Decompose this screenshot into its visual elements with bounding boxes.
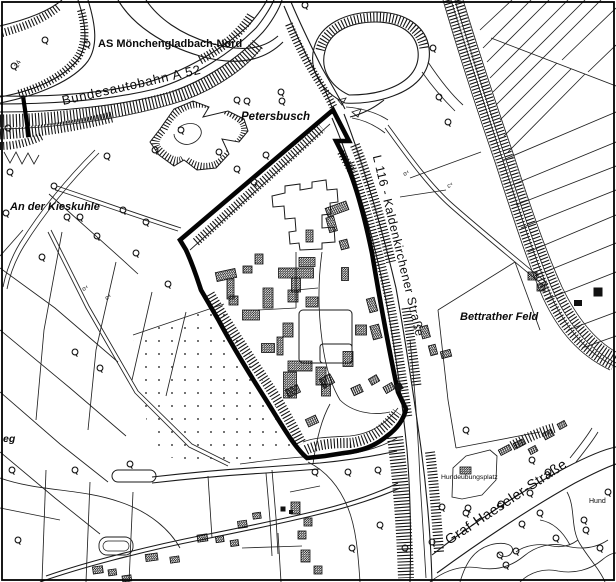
svg-text:An der Kieskuhle: An der Kieskuhle [9,201,100,213]
svg-text:Hundeubungsplatz: Hundeubungsplatz [441,474,498,481]
svg-text:eg: eg [3,433,16,445]
svg-text:Petersbusch: Petersbusch [241,111,310,123]
svg-text:Bettrather Feld: Bettrather Feld [460,311,539,323]
svg-text:Hund: Hund [589,498,606,505]
svg-text:AS Mönchengladbach-Nord: AS Mönchengladbach-Nord [98,38,242,50]
